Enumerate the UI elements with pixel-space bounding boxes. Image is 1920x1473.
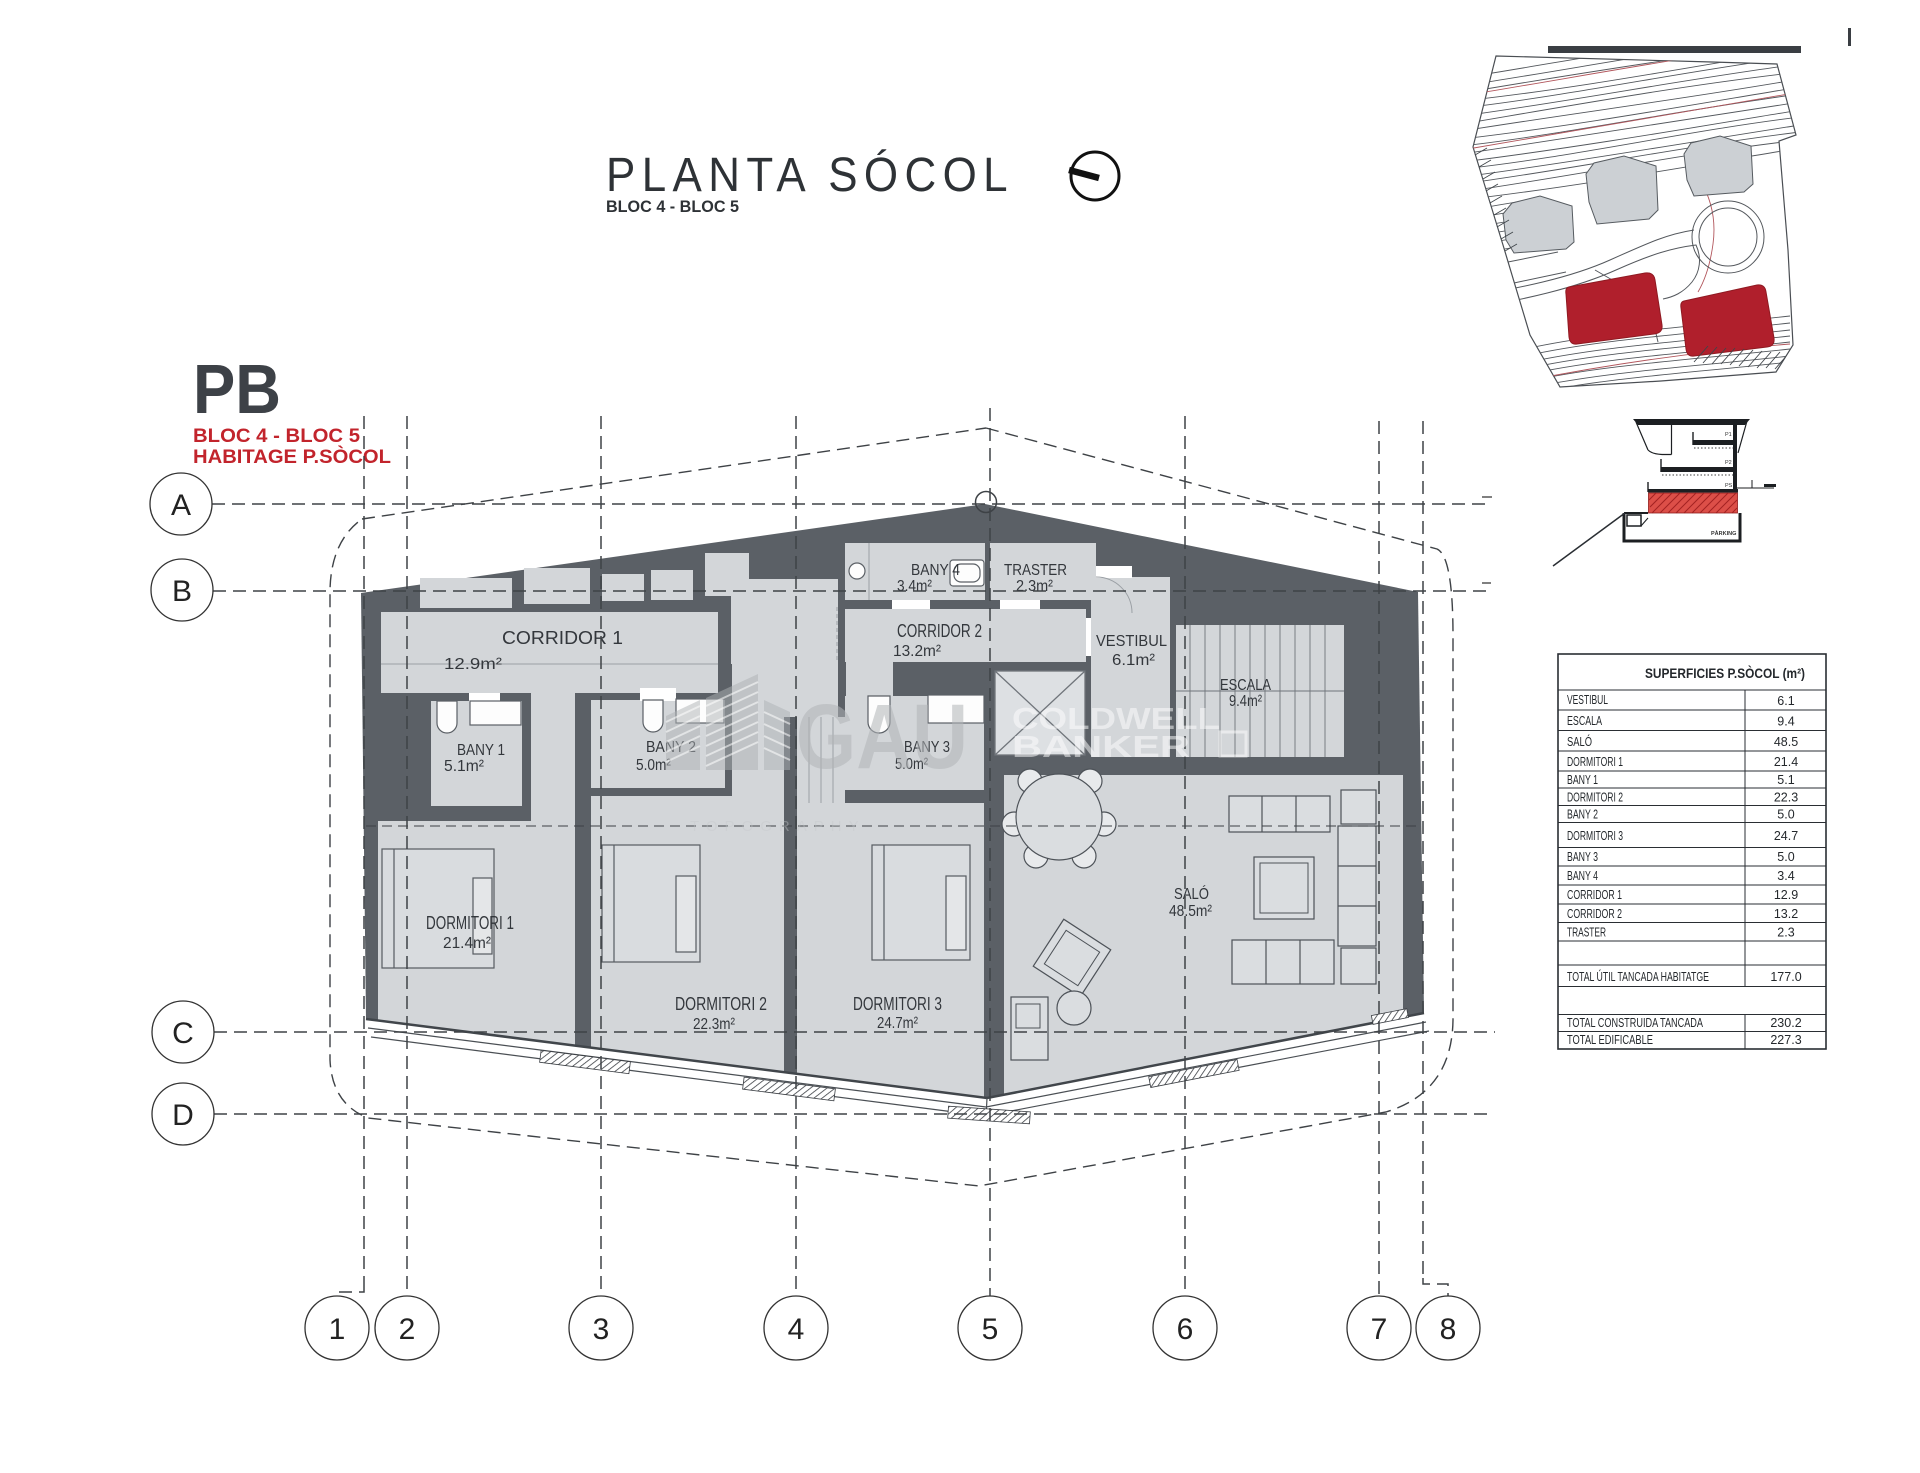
svg-text:TRASTER: TRASTER [1567, 926, 1606, 940]
svg-text:DORMITORI 1: DORMITORI 1 [1567, 755, 1623, 769]
svg-text:BANY 4: BANY 4 [911, 562, 960, 579]
svg-text:12.9: 12.9 [1774, 888, 1798, 902]
svg-text:PÀRKING: PÀRKING [1711, 530, 1736, 537]
svg-text:13.2m²: 13.2m² [893, 643, 942, 660]
svg-text:9.4: 9.4 [1777, 715, 1794, 729]
svg-text:6.1m²: 6.1m² [1112, 652, 1156, 669]
svg-text:3: 3 [593, 1313, 610, 1346]
svg-text:BLOC 4 - BLOC 5: BLOC 4 - BLOC 5 [606, 197, 739, 216]
svg-text:A: A [171, 489, 191, 522]
svg-text:BANY 3: BANY 3 [1567, 850, 1598, 864]
svg-text:GAU: GAU [796, 686, 968, 788]
svg-text:DORMITORI 2: DORMITORI 2 [675, 994, 767, 1014]
svg-text:BANKER: BANKER [1012, 729, 1190, 764]
svg-text:VESTIBUL: VESTIBUL [1567, 693, 1608, 707]
svg-text:HABITAGE P.SÒCOL: HABITAGE P.SÒCOL [193, 446, 391, 468]
svg-text:P1: P1 [1725, 432, 1732, 438]
svg-text:BANY 1: BANY 1 [457, 742, 505, 759]
svg-text:TOTAL ÚTIL TANCADA HABITATGE: TOTAL ÚTIL TANCADA HABITATGE [1567, 969, 1709, 984]
svg-text:PS: PS [1725, 483, 1733, 489]
svg-text:21.4: 21.4 [1774, 755, 1798, 769]
svg-text:CORRIDOR 1: CORRIDOR 1 [502, 628, 623, 648]
svg-text:4: 4 [788, 1313, 805, 1346]
svg-text:3.4: 3.4 [1777, 869, 1794, 883]
svg-text:C: C [172, 1017, 194, 1050]
svg-text:B: B [172, 575, 192, 608]
svg-text:ESCALA: ESCALA [1567, 714, 1602, 728]
svg-text:2.3: 2.3 [1777, 926, 1794, 940]
svg-text:DORMITORI 3: DORMITORI 3 [853, 994, 942, 1014]
svg-text:5: 5 [982, 1313, 999, 1346]
svg-text:5.1m²: 5.1m² [444, 758, 485, 775]
svg-text:TOTAL CONSTRUIDA TANCADA: TOTAL CONSTRUIDA TANCADA [1567, 1016, 1703, 1030]
svg-text:CORRIDOR 2: CORRIDOR 2 [897, 621, 982, 641]
svg-text:22.3m²: 22.3m² [693, 1016, 736, 1033]
svg-text:BANY 2: BANY 2 [1567, 808, 1598, 822]
svg-text:PB: PB [193, 350, 281, 428]
svg-text:BANY 4: BANY 4 [1567, 869, 1598, 883]
svg-text:TRASTER: TRASTER [1004, 562, 1067, 579]
svg-text:BANY 1: BANY 1 [1567, 773, 1598, 787]
svg-text:DORMITORI 1: DORMITORI 1 [426, 913, 514, 933]
svg-text:1: 1 [329, 1313, 346, 1346]
svg-text:SUPERFICIES P.SÒCOL (m²): SUPERFICIES P.SÒCOL (m²) [1645, 664, 1805, 681]
svg-text:P2: P2 [1725, 460, 1732, 466]
svg-text:3.4m²: 3.4m² [897, 578, 933, 595]
svg-text:48.5m²: 48.5m² [1169, 903, 1213, 920]
svg-text:PLANTA SÓCOL: PLANTA SÓCOL [606, 148, 1014, 202]
svg-text:ESCALA: ESCALA [1220, 677, 1271, 694]
svg-text:DORMITORI 2: DORMITORI 2 [1567, 791, 1623, 805]
svg-text:9.4m²: 9.4m² [1229, 693, 1263, 710]
svg-text:2.3m²: 2.3m² [1016, 578, 1054, 595]
svg-text:7: 7 [1371, 1313, 1388, 1346]
svg-text:BLOC 4 - BLOC 5: BLOC 4 - BLOC 5 [193, 426, 360, 447]
svg-text:6: 6 [1177, 1313, 1194, 1346]
svg-text:SALÓ: SALÓ [1174, 884, 1209, 903]
svg-text:DORMITORI 3: DORMITORI 3 [1567, 829, 1623, 843]
svg-text:5.1: 5.1 [1777, 773, 1794, 787]
svg-text:177.0: 177.0 [1770, 970, 1801, 984]
svg-text:SALÓ: SALÓ [1567, 734, 1592, 749]
svg-text:CORRIDOR 1: CORRIDOR 1 [1567, 888, 1622, 902]
svg-text:230.2: 230.2 [1770, 1016, 1801, 1030]
svg-text:CORRIDOR 2: CORRIDOR 2 [1567, 907, 1622, 921]
svg-text:13.2: 13.2 [1774, 907, 1798, 921]
svg-text:6.1: 6.1 [1777, 694, 1794, 708]
svg-text:D: D [172, 1099, 194, 1132]
svg-text:24.7: 24.7 [1774, 829, 1798, 843]
svg-text:12.9m²: 12.9m² [444, 656, 503, 673]
svg-text:5.0: 5.0 [1777, 808, 1794, 822]
svg-text:48.5: 48.5 [1774, 735, 1798, 749]
svg-text:8: 8 [1440, 1313, 1457, 1346]
svg-text:5.0: 5.0 [1777, 850, 1794, 864]
svg-text:2: 2 [399, 1313, 416, 1346]
svg-text:24.7m²: 24.7m² [877, 1015, 919, 1032]
svg-text:21.4m²: 21.4m² [443, 935, 492, 952]
svg-text:227.3: 227.3 [1770, 1033, 1801, 1047]
svg-text:22.3: 22.3 [1774, 791, 1798, 805]
svg-text:VESTIBUL: VESTIBUL [1096, 633, 1167, 650]
svg-text:TOPOGRAPHY: TOPOGRAPHY [690, 818, 866, 835]
svg-text:TOTAL EDIFICABLE: TOTAL EDIFICABLE [1567, 1033, 1653, 1047]
